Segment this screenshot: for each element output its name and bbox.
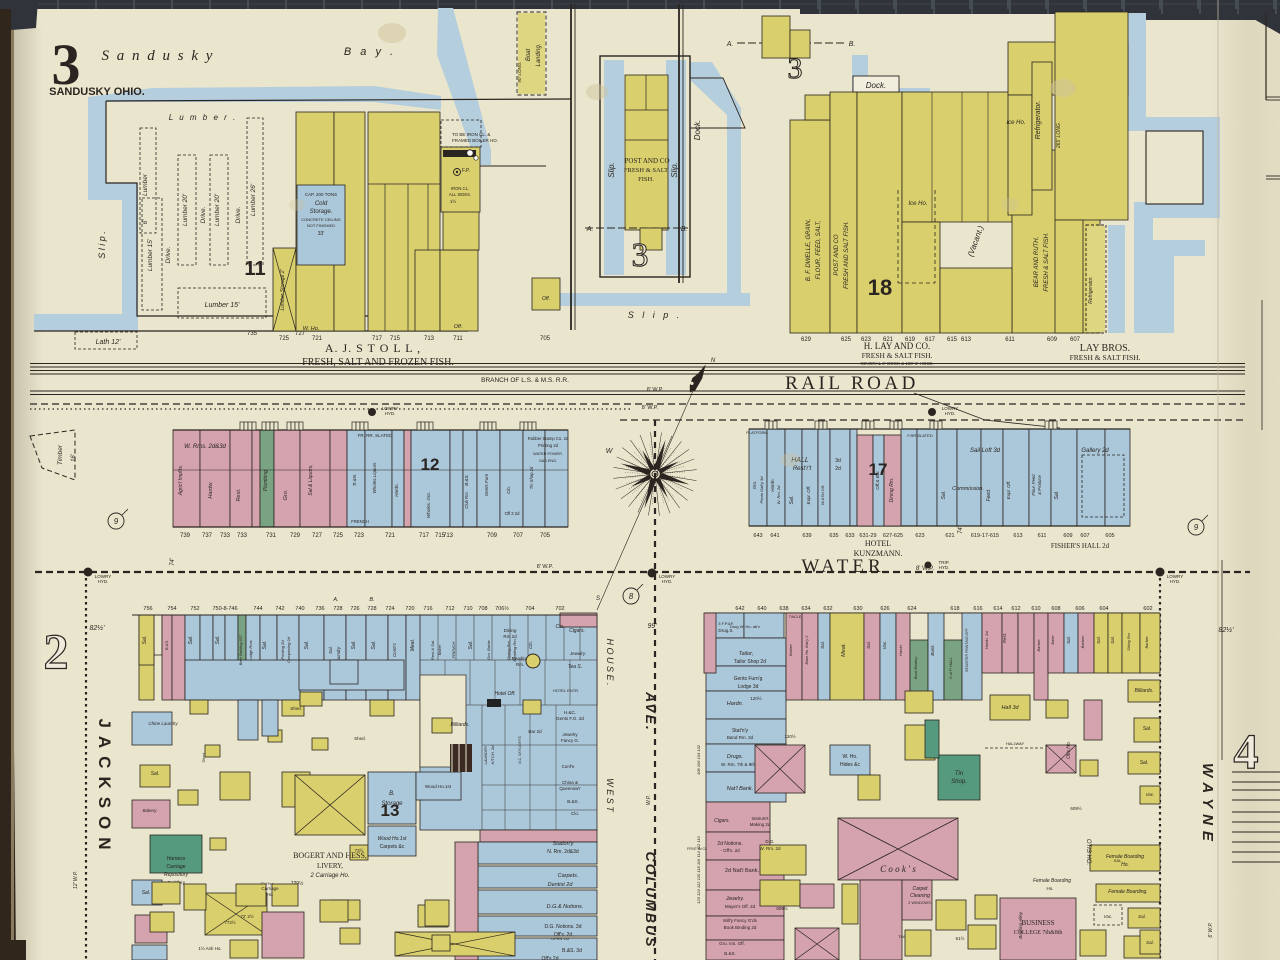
svg-text:Drive.: Drive.	[235, 206, 242, 223]
svg-text:9: 9	[114, 517, 119, 526]
svg-text:Lumber 15': Lumber 15'	[147, 238, 154, 271]
svg-text:609: 609	[1047, 337, 1058, 343]
svg-text:Jewelry.: Jewelry.	[725, 896, 744, 902]
svg-text:Tin: Tin	[955, 771, 964, 777]
svg-text:CONCRETE CEILING: CONCRETE CEILING	[301, 217, 341, 222]
svg-text:728: 728	[333, 606, 342, 612]
svg-text:N: N	[711, 358, 716, 364]
svg-text:33': 33'	[318, 231, 325, 237]
svg-text:604: 604	[1099, 606, 1108, 612]
svg-text:609: 609	[1063, 533, 1072, 539]
svg-text:Station'y: Station'y	[553, 841, 575, 847]
svg-text:N. Rm. 2d&3d: N. Rm. 2d&3d	[547, 849, 579, 855]
svg-text:Wood Ho.1st: Wood Ho.1st	[425, 784, 452, 789]
svg-text:712: 712	[445, 606, 454, 612]
svg-text:707: 707	[513, 533, 524, 539]
svg-text:Lath 12': Lath 12'	[96, 339, 121, 346]
svg-text:616: 616	[973, 606, 982, 612]
svg-text:Printing 2d: Printing 2d	[280, 640, 285, 660]
svg-text:721: 721	[385, 533, 396, 539]
svg-text:FRESH, SALT AND FROZEN FIS: FRESH, SALT AND FROZEN FISH.	[302, 357, 454, 368]
svg-text:GAS ENG.: GAS ENG.	[539, 459, 557, 463]
svg-text:BEAR AND RUTH,: BEAR AND RUTH,	[1034, 237, 1040, 287]
svg-text:B.&S. 3d: B.&S. 3d	[562, 948, 582, 954]
svg-text:H.&C.: H.&C.	[564, 710, 576, 715]
svg-text:Dining Rm.: Dining Rm.	[889, 478, 895, 503]
svg-text:JACKSON: JACKSON	[95, 718, 114, 857]
svg-text:641: 641	[770, 533, 779, 539]
svg-text:635: 635	[829, 533, 838, 539]
svg-text:721: 721	[312, 336, 323, 342]
svg-text:108 106 104 102: 108 106 104 102	[696, 744, 701, 775]
svg-text:Vac.: Vac.	[882, 641, 887, 650]
svg-text:612: 612	[1011, 606, 1020, 612]
svg-text:639: 639	[802, 533, 811, 539]
svg-text:Sitting Rm: Sitting Rm	[1127, 633, 1131, 651]
svg-text:Making 2d: Making 2d	[750, 822, 771, 827]
svg-text:Expr. Off.: Expr. Off.	[806, 486, 811, 505]
svg-text:SAL.: SAL.	[1114, 858, 1123, 863]
svg-text:729: 729	[290, 533, 301, 539]
svg-text:Meat.: Meat.	[841, 643, 847, 657]
svg-text:N.C. SKYLIGHTS: N.C. SKYLIGHTS	[518, 736, 522, 764]
svg-text:W.&Tel.Off.: W.&Tel.Off.	[820, 485, 825, 505]
svg-text:120½: 120½	[750, 695, 762, 701]
svg-text:Sal.: Sal.	[1096, 636, 1101, 644]
svg-text:750-8-746: 750-8-746	[212, 606, 237, 612]
svg-text:K.of P. HALL: K.of P. HALL	[949, 657, 953, 678]
svg-text:609½: 609½	[1070, 805, 1082, 811]
svg-text:Mayer's Off. 2d: Mayer's Off. 2d	[725, 904, 756, 909]
svg-text:WATER: WATER	[801, 556, 884, 577]
svg-text:Beer Bottling 637: Beer Bottling 637	[238, 634, 243, 665]
svg-text:Tailor,: Tailor,	[739, 651, 753, 657]
svg-text:LIVERY,: LIVERY,	[317, 862, 343, 870]
svg-text:723: 723	[354, 533, 365, 539]
svg-text:752: 752	[190, 606, 199, 612]
svg-text:Gents F.G. 2d: Gents F.G. 2d	[556, 716, 584, 721]
svg-text:3: 3	[788, 52, 803, 85]
svg-text:W. Ho.: W. Ho.	[842, 754, 857, 760]
svg-text:8' W.P.: 8' W.P.	[642, 405, 659, 411]
svg-text:611: 611	[1038, 533, 1047, 539]
svg-text:Hall 3d: Hall 3d	[1001, 705, 1019, 711]
svg-text:713: 713	[443, 533, 454, 539]
svg-text:709: 709	[487, 533, 498, 539]
svg-text:Rest.& Sal.: Rest.& Sal.	[430, 640, 435, 660]
svg-text:Mill'y Fancy G'ds: Mill'y Fancy G'ds	[723, 918, 757, 923]
svg-text:634: 634	[801, 606, 810, 612]
svg-text:Lumber 15': Lumber 15'	[205, 302, 240, 309]
svg-text:90' LONG.: 90' LONG.	[517, 61, 522, 82]
svg-text:632: 632	[823, 606, 832, 612]
svg-text:Bake Ho. Bak'y 2: Bake Ho. Bak'y 2	[805, 635, 809, 665]
svg-text:706½: 706½	[495, 605, 509, 612]
svg-text:D.G.& Notions.: D.G.& Notions.	[547, 904, 584, 910]
svg-text:Female Boarding.: Female Boarding.	[1108, 889, 1147, 895]
svg-text:Instrum't: Instrum't	[751, 816, 769, 821]
svg-text:Sal.: Sal.	[262, 641, 268, 650]
svg-text:Carpets &c: Carpets &c	[380, 844, 405, 850]
svg-text:Club Rm.: Club Rm.	[464, 491, 469, 508]
svg-text:S a n d u s k y: S a n d u s k y	[102, 48, 215, 64]
svg-text:Sal.: Sal.	[188, 636, 194, 645]
svg-text:Cigars.: Cigars.	[569, 628, 585, 634]
svg-text:Sal.: Sal.	[142, 890, 151, 896]
svg-text:605: 605	[1105, 533, 1114, 539]
svg-text:ALL SIDES.: ALL SIDES.	[449, 192, 471, 197]
svg-text:615: 615	[947, 337, 958, 343]
svg-text:99': 99'	[647, 623, 657, 630]
svg-text:Otis Ho.: Otis Ho.	[1066, 741, 1072, 759]
svg-text:607: 607	[1080, 533, 1089, 539]
svg-text:Vac.: Vac.	[1146, 792, 1155, 797]
svg-text:Expl. Off.: Expl. Off.	[1006, 481, 1011, 500]
svg-text:Dining: Dining	[504, 628, 517, 633]
svg-text:B. F. DWELLE, GRAIN,: B. F. DWELLE, GRAIN,	[806, 219, 812, 281]
svg-text:Off.& Bar.: Off.& Bar.	[875, 470, 880, 490]
svg-text:713: 713	[424, 336, 435, 342]
svg-text:Refrigerator.: Refrigerator.	[1035, 101, 1042, 140]
svg-text:12: 12	[421, 455, 440, 474]
svg-text:Band Rm. 3d: Band Rm. 3d	[727, 735, 754, 740]
svg-text:LAUNDRY: LAUNDRY	[483, 745, 488, 764]
svg-text:- Off's. 2d: - Off's. 2d	[720, 848, 740, 853]
svg-text:Sal.: Sal.	[1138, 914, 1146, 919]
svg-text:Contr'c: Contr'c	[392, 642, 397, 657]
svg-text:Photo Gall'y 3d: Photo Gall'y 3d	[759, 476, 764, 504]
svg-text:733: 733	[220, 533, 231, 539]
svg-text:Rm.: Rm.	[516, 662, 524, 667]
svg-text:Harness: Harness	[167, 856, 186, 862]
svg-text:A.: A.	[726, 41, 734, 48]
svg-text:716: 716	[423, 606, 432, 612]
svg-text:Bake: Bake	[1050, 635, 1055, 645]
svg-text:2 Carriage Ho.: 2 Carriage Ho.	[309, 873, 349, 879]
svg-text:FISH.: FISH.	[638, 176, 654, 183]
svg-text:Meat.: Meat.	[410, 639, 416, 652]
svg-text:HYD.: HYD.	[939, 565, 950, 570]
svg-text:Sal.: Sal.	[371, 641, 377, 650]
svg-text:Gro. Barbe: Gro. Barbe	[486, 639, 491, 659]
svg-text:710: 710	[463, 606, 472, 612]
svg-text:1½: 1½	[450, 198, 457, 204]
svg-text:Sal.: Sal.	[351, 641, 357, 650]
svg-text:FRENCH: FRENCH	[351, 519, 368, 524]
svg-text:KITCH. 2d: KITCH. 2d	[490, 745, 495, 764]
svg-text:8' W.P.: 8' W.P.	[647, 387, 664, 393]
svg-text:13: 13	[381, 801, 400, 820]
svg-text:SANDUSKY OHIO.: SANDUSKY OHIO.	[49, 86, 145, 98]
svg-text:Jewelry.: Jewelry.	[569, 651, 586, 656]
svg-text:Jewelry: Jewelry	[562, 732, 578, 737]
svg-text:Bank.: Bank.	[930, 644, 935, 656]
svg-text:Tailor Shop 2d: Tailor Shop 2d	[734, 659, 766, 665]
svg-text:B a y .: B a y .	[344, 46, 396, 58]
svg-text:Gro. Ins. Off.: Gro. Ins. Off.	[719, 941, 745, 946]
svg-text:708: 708	[478, 606, 487, 612]
svg-text:Conf'e: Conf'e	[562, 764, 575, 769]
svg-text:726: 726	[350, 606, 359, 612]
svg-text:Off's 2d: Off's 2d	[542, 956, 559, 960]
svg-text:Plumbing.: Plumbing.	[263, 469, 269, 491]
svg-text:Queensw'r: Queensw'r	[559, 786, 581, 791]
svg-text:720: 720	[405, 606, 414, 612]
svg-text:608: 608	[1051, 606, 1060, 612]
svg-text:Boat: Boat	[526, 48, 532, 61]
svg-text:Composing 2d: Composing 2d	[286, 636, 291, 663]
svg-text:F.RR.SLATED: F.RR.SLATED	[907, 433, 932, 438]
svg-text:717: 717	[419, 533, 430, 539]
svg-text:Wholes. Gro.: Wholes. Gro.	[426, 492, 431, 518]
svg-text:16': 16'	[71, 453, 77, 462]
svg-text:OPEN 1st: OPEN 1st	[551, 936, 570, 941]
svg-text:8' W.P.: 8' W.P.	[537, 564, 554, 570]
svg-text:Tea S.: Tea S.	[568, 664, 582, 670]
svg-text:756: 756	[143, 606, 152, 612]
svg-text:Slip.: Slip.	[670, 162, 679, 178]
svg-text:D.G.: D.G.	[765, 839, 774, 844]
svg-text:Ho.: Ho.	[1046, 886, 1053, 891]
svg-text:Hotel Off.: Hotel Off.	[494, 691, 515, 697]
svg-text:Lumber 20': Lumber 20'	[182, 193, 189, 226]
svg-text:FLOUR, FEED, SALT,: FLOUR, FEED, SALT,	[816, 220, 822, 279]
svg-text:AVE.: AVE.	[643, 691, 659, 732]
svg-text:Lodge 3d: Lodge 3d	[738, 684, 759, 690]
svg-text:Sal.: Sal.	[304, 641, 310, 650]
svg-text:Hardn. 1st: Hardn. 1st	[984, 630, 989, 649]
svg-text:61½: 61½	[956, 935, 965, 941]
svg-text:Shop.: Shop.	[951, 779, 967, 785]
svg-text:Sal.: Sal.	[151, 771, 160, 777]
svg-text:Shed.: Shed.	[354, 736, 366, 741]
svg-text:754: 754	[167, 606, 176, 612]
svg-text:Wood Ho.1st: Wood Ho.1st	[378, 836, 408, 842]
svg-text:FRESH AND SALT FISH.: FRESH AND SALT FISH.	[844, 221, 850, 289]
svg-text:Landing.: Landing.	[536, 43, 542, 66]
svg-text:Drive.: Drive.	[165, 246, 172, 263]
svg-text:Clo.: Clo.	[571, 811, 579, 816]
svg-text:735: 735	[247, 331, 258, 337]
svg-text:609½: 609½	[776, 905, 788, 911]
svg-text:725: 725	[279, 336, 290, 342]
svg-text:W. Rms. 2d&3d: W. Rms. 2d&3d	[184, 444, 226, 450]
svg-text:Dining Rm.: Dining Rm.	[506, 640, 511, 660]
svg-text:Sal.: Sal.	[820, 641, 825, 649]
svg-text:Off 3 2d: Off 3 2d	[505, 511, 520, 516]
svg-text:Dentist 2d: Dentist 2d	[548, 882, 574, 888]
svg-text:630: 630	[853, 606, 862, 612]
svg-text:REGISTER PRINTING OFF.: REGISTER PRINTING OFF.	[965, 628, 969, 672]
svg-text:Carpets.: Carpets.	[558, 873, 579, 879]
svg-text:Rest.: Rest.	[236, 489, 242, 502]
svg-text:744: 744	[253, 606, 262, 612]
svg-text:HOTEL ENTR.: HOTEL ENTR.	[553, 688, 579, 693]
svg-text:Sal.: Sal.	[941, 491, 947, 500]
svg-text:H O U S E .: H O U S E .	[605, 638, 615, 685]
svg-text:Drive.: Drive.	[200, 206, 207, 223]
svg-text:629: 629	[801, 337, 812, 343]
svg-text:4: 4	[1234, 723, 1259, 779]
svg-text:FRESH & SALT FISH.: FRESH & SALT FISH.	[862, 351, 933, 360]
svg-text:Bowling Alley.: Bowling Alley.	[1018, 911, 1023, 939]
svg-text:Sal.& Liquors,: Sal.& Liquors,	[308, 464, 314, 495]
svg-text:Barber.: Barber.	[1144, 636, 1149, 649]
svg-text:A. J. S T O L L ,: A. J. S T O L L ,	[325, 341, 421, 355]
svg-text:B.: B.	[681, 226, 688, 233]
svg-text:3: 3	[632, 237, 649, 274]
svg-text:Clo.: Clo.	[506, 486, 511, 494]
svg-text:FISHER'S HALL 2d: FISHER'S HALL 2d	[1051, 542, 1110, 550]
svg-text:Carriage: Carriage	[261, 886, 279, 891]
svg-text:704: 704	[525, 606, 534, 612]
svg-text:638: 638	[779, 606, 788, 612]
svg-text:2d Notions.: 2d Notions.	[717, 841, 742, 847]
svg-text:265' LONG.: 265' LONG.	[1056, 122, 1062, 149]
svg-text:Tr.&N.: Tr.&N.	[352, 474, 357, 487]
svg-text:Refrigerator.: Refrigerator.	[1088, 276, 1094, 304]
svg-text:China &: China &	[562, 780, 578, 785]
svg-text:B.&S.: B.&S.	[724, 951, 736, 956]
svg-text:Nat'l Bank.: Nat'l Bank.	[727, 786, 753, 792]
svg-text:D.G. Notions. 3d: D.G. Notions. 3d	[545, 924, 582, 930]
svg-text:2d: 2d	[835, 466, 841, 472]
svg-text:73½: 73½	[355, 847, 364, 853]
svg-text:Sal.: Sal.	[789, 496, 795, 505]
svg-text:624: 624	[907, 606, 916, 612]
svg-text:Sal.: Sal.	[142, 636, 148, 645]
svg-text:Lumber: Lumber	[142, 173, 149, 196]
svg-text:BUSINESS: BUSINESS	[1021, 919, 1054, 927]
svg-text:Sal.: Sal.	[1054, 491, 1060, 500]
svg-text:B.: B.	[369, 597, 374, 603]
svg-text:613: 613	[961, 337, 972, 343]
svg-text:724: 724	[385, 606, 394, 612]
svg-text:74': 74'	[958, 525, 964, 534]
svg-text:Rest.: Rest.	[1002, 633, 1007, 644]
svg-text:WATER POWER.: WATER POWER.	[533, 452, 563, 456]
svg-text:Vac.: Vac.	[1104, 914, 1113, 919]
svg-text:Gro.: Gro.	[283, 490, 289, 501]
svg-text:W.P.: W.P.	[646, 795, 652, 805]
svg-text:B.&S.: B.&S.	[464, 474, 469, 486]
svg-text:Hides &c: Hides &c	[840, 762, 861, 768]
svg-text:FRAMED BOILER HO.: FRAMED BOILER HO.	[452, 138, 498, 143]
svg-text:1½ Ash Ho.: 1½ Ash Ho.	[198, 945, 221, 951]
svg-text:TINCLE: TINCLE	[789, 615, 802, 619]
svg-text:Hardw.: Hardw.	[208, 481, 214, 498]
svg-text:Book Binding 2d: Book Binding 2d	[724, 925, 757, 930]
svg-text:Off.: Off.	[542, 296, 550, 302]
svg-text:Lumber 20': Lumber 20'	[214, 193, 221, 226]
svg-text:Barbec: Barbec	[1080, 636, 1085, 649]
svg-text:Ho.: Ho.	[266, 892, 273, 897]
svg-text:8: 8	[629, 592, 634, 601]
svg-text:L u m b e r .: L u m b e r .	[169, 113, 238, 122]
svg-text:Clo.: Clo.	[528, 641, 533, 649]
svg-text:Carpet: Carpet	[912, 886, 928, 892]
svg-text:OTIS HO.: OTIS HO.	[1085, 839, 1091, 865]
svg-text:705: 705	[540, 533, 551, 539]
svg-text:728: 728	[367, 606, 376, 612]
svg-text:Timber: Timber	[57, 444, 64, 465]
svg-text:Chine Laundry: Chine Laundry	[148, 721, 178, 726]
svg-text:Sal.: Sal.	[1066, 636, 1071, 644]
svg-text:625: 625	[841, 337, 852, 343]
svg-text:HYD.: HYD.	[945, 411, 956, 416]
svg-text:NOT FINISHED: NOT FINISHED	[307, 223, 335, 228]
svg-text:S l i p .: S l i p .	[97, 231, 107, 259]
svg-text:Sal.: Sal.	[215, 636, 221, 645]
svg-text:702: 702	[555, 606, 564, 612]
svg-text:Baker: Baker	[437, 644, 442, 655]
svg-text:Hardn.: Hardn.	[770, 478, 775, 492]
svg-text:W. Rm. 2d: W. Rm. 2d	[776, 485, 781, 505]
svg-text:Lumber Storage 2': Lumber Storage 2'	[280, 268, 286, 310]
svg-text:Lumber 26': Lumber 26'	[250, 183, 257, 216]
svg-text:640: 640	[757, 606, 766, 612]
svg-text:633: 633	[845, 533, 854, 539]
svg-text:Carriage: Carriage	[166, 864, 185, 870]
svg-text:8' W.P.: 8' W.P.	[916, 566, 934, 572]
svg-text:Sail Loft 3d: Sail Loft 3d	[970, 448, 1001, 454]
svg-text:& Produce: & Produce	[1037, 475, 1042, 495]
svg-text:A.: A.	[332, 597, 338, 603]
svg-text:772½: 772½	[224, 919, 236, 925]
svg-text:733: 733	[237, 533, 248, 539]
svg-text:Billiards.: Billiards.	[451, 722, 470, 728]
svg-text:Off.: Off.	[454, 324, 463, 330]
svg-text:Storage.: Storage.	[310, 209, 333, 215]
svg-text:Shed.: Shed.	[290, 706, 302, 711]
svg-text:HYD.: HYD.	[1170, 579, 1181, 584]
svg-text:725: 725	[333, 533, 344, 539]
svg-text:FRESH & SALT FISH.: FRESH & SALT FISH.	[1044, 232, 1050, 291]
svg-text:72' 2½: 72' 2½	[240, 913, 254, 919]
svg-text:Cold: Cold	[315, 201, 328, 207]
svg-text:Clo.: Clo.	[556, 624, 565, 630]
svg-text:Sal.: Sal.	[328, 646, 333, 654]
svg-text:Drug W. Ho. ab'v: Drug W. Ho. ab'v	[730, 624, 760, 629]
svg-text:HOTEL: HOTEL	[865, 539, 891, 548]
svg-text:Book Bindery: Book Bindery	[914, 656, 918, 680]
svg-text:Rm 2d: Rm 2d	[503, 634, 517, 639]
svg-text:FR. RR. SLATED: FR. RR. SLATED	[358, 433, 393, 438]
svg-text:B.&S.: B.&S.	[164, 640, 169, 650]
svg-text:CAP. 200 TONS: CAP. 200 TONS	[305, 192, 337, 197]
svg-text:Agric'l Impl'ts.: Agric'l Impl'ts.	[178, 465, 184, 497]
svg-text:F.P.: F.P.	[462, 168, 470, 174]
svg-text:120½: 120½	[784, 733, 796, 739]
svg-text:TO BE IRON CL. &: TO BE IRON CL. &	[452, 132, 490, 137]
svg-text:W E S T: W E S T	[605, 778, 615, 813]
svg-text:Dock.: Dock.	[693, 120, 702, 140]
svg-text:Cleaning: Cleaning	[910, 893, 930, 899]
svg-text:PLATFORM: PLATFORM	[746, 430, 767, 435]
svg-text:W. Ho.: W. Ho.	[303, 326, 320, 332]
svg-text:643: 643	[753, 533, 762, 539]
svg-text:BRANCH OF L.S. & M.S. R.R.: BRANCH OF L.S. & M.S. R.R.	[481, 377, 569, 384]
svg-text:602: 602	[1143, 606, 1152, 612]
svg-text:3d: 3d	[835, 458, 841, 464]
svg-text:Sal.: Sal.	[1146, 940, 1154, 945]
svg-text:614: 614	[993, 606, 1002, 612]
svg-text:Ice Ho.: Ice Ho.	[1006, 120, 1025, 126]
svg-text:Bakery.: Bakery.	[143, 808, 158, 813]
svg-text:Rubber Stamp Co. 2d: Rubber Stamp Co. 2d	[528, 436, 569, 441]
svg-text:705: 705	[540, 336, 551, 342]
svg-text:12' W.P.: 12' W.P.	[73, 871, 79, 889]
